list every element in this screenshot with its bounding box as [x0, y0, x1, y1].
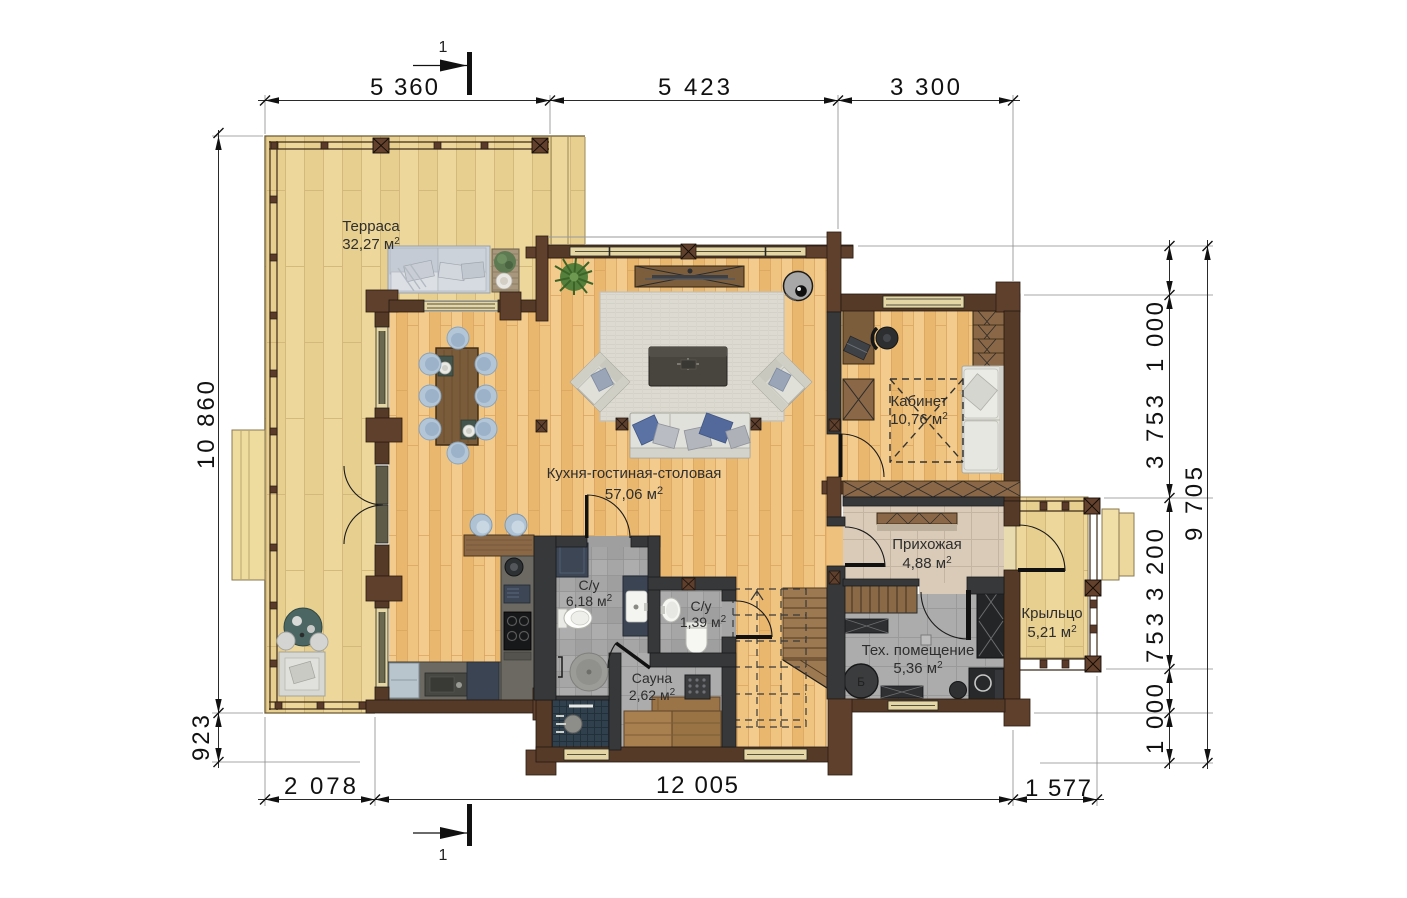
svg-text:5 423: 5 423 — [658, 74, 730, 101]
svg-text:10 860: 10 860 — [193, 381, 220, 469]
svg-text:Тех. помещение: Тех. помещение — [862, 642, 975, 659]
svg-text:1 577: 1 577 — [1025, 775, 1091, 802]
svg-text:Кухня-гостиная-столовая: Кухня-гостиная-столовая — [547, 465, 722, 482]
svg-text:5,21 м2: 5,21 м2 — [1027, 624, 1077, 641]
svg-text:9 705: 9 705 — [1181, 467, 1208, 541]
svg-text:Сауна: Сауна — [632, 670, 673, 686]
svg-text:1: 1 — [439, 847, 448, 864]
svg-text:Крыльцо: Крыльцо — [1021, 605, 1082, 622]
svg-text:Прихожая: Прихожая — [892, 536, 962, 553]
svg-text:32,27 м2: 32,27 м2 — [342, 236, 400, 253]
svg-text:С/у: С/у — [579, 577, 600, 593]
svg-text:Терраса: Терраса — [342, 218, 400, 235]
svg-text:1 000: 1 000 — [1142, 302, 1169, 372]
svg-text:1: 1 — [439, 39, 448, 56]
svg-text:2,62 м2: 2,62 м2 — [629, 687, 676, 703]
svg-text:2 078: 2 078 — [284, 773, 356, 800]
svg-text:12 005: 12 005 — [656, 772, 738, 799]
svg-text:5 360: 5 360 — [370, 74, 438, 101]
svg-text:3 300: 3 300 — [890, 74, 960, 101]
svg-text:923: 923 — [188, 715, 215, 761]
svg-text:753: 753 — [1142, 613, 1169, 663]
svg-text:Кабинет: Кабинет — [890, 393, 947, 410]
svg-text:5,36 м2: 5,36 м2 — [893, 660, 943, 677]
svg-text:6,18 м2: 6,18 м2 — [566, 593, 613, 609]
svg-text:4,88 м2: 4,88 м2 — [902, 555, 952, 572]
svg-text:1,39 м2: 1,39 м2 — [680, 614, 727, 630]
svg-text:57,06 м2: 57,06 м2 — [605, 485, 663, 503]
svg-text:3 753: 3 753 — [1142, 395, 1169, 469]
svg-text:3 200: 3 200 — [1142, 529, 1169, 601]
svg-text:Б: Б — [857, 675, 865, 689]
svg-text:С/у: С/у — [691, 598, 712, 614]
svg-text:10,76 м2: 10,76 м2 — [890, 411, 948, 428]
svg-text:1 000: 1 000 — [1142, 684, 1169, 754]
